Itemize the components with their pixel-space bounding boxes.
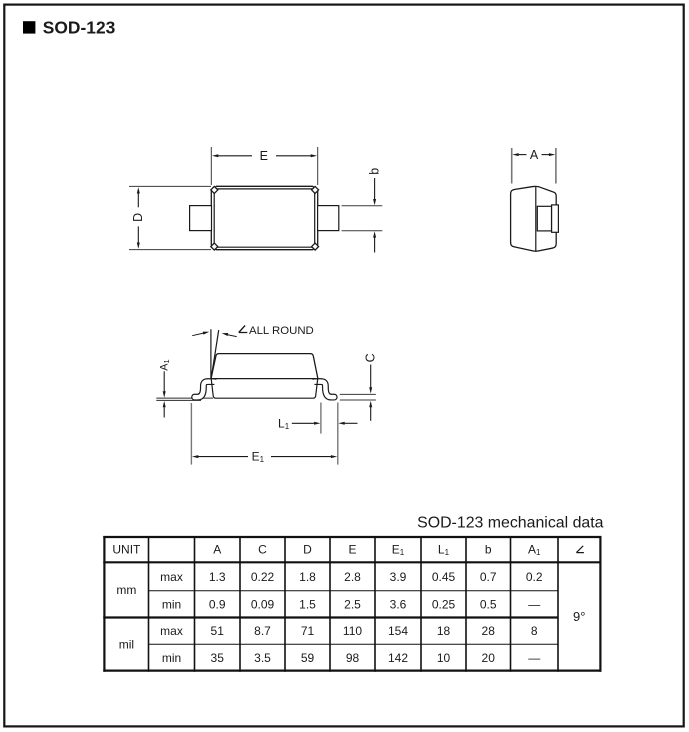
svg-text:3.5: 3.5 bbox=[254, 651, 271, 665]
svg-text:b: b bbox=[367, 168, 381, 175]
svg-text:2.5: 2.5 bbox=[344, 598, 361, 612]
svg-text:3.9: 3.9 bbox=[390, 570, 407, 584]
svg-text:b: b bbox=[485, 543, 492, 557]
svg-text:0.25: 0.25 bbox=[432, 598, 456, 612]
svg-text:3.6: 3.6 bbox=[390, 598, 407, 612]
svg-text:9°: 9° bbox=[573, 609, 585, 624]
svg-text:8.7: 8.7 bbox=[254, 624, 271, 638]
svg-text:A1: A1 bbox=[528, 543, 541, 558]
svg-text:UNIT: UNIT bbox=[112, 543, 141, 557]
svg-text:D: D bbox=[131, 213, 145, 222]
svg-text:mil: mil bbox=[119, 637, 134, 651]
svg-text:10: 10 bbox=[437, 651, 451, 665]
svg-text:E1: E1 bbox=[252, 450, 265, 465]
svg-text:mm: mm bbox=[116, 583, 136, 597]
svg-text:0.22: 0.22 bbox=[251, 570, 275, 584]
svg-text:C: C bbox=[258, 543, 267, 557]
svg-text:2.8: 2.8 bbox=[344, 570, 361, 584]
svg-text:SOD-123: SOD-123 bbox=[43, 18, 116, 38]
svg-text:L1: L1 bbox=[278, 416, 290, 431]
svg-text:A: A bbox=[530, 148, 539, 162]
svg-text:28: 28 bbox=[482, 624, 496, 638]
svg-text:1.3: 1.3 bbox=[209, 570, 226, 584]
svg-text:1.5: 1.5 bbox=[299, 598, 316, 612]
svg-text:20: 20 bbox=[482, 651, 496, 665]
svg-text:142: 142 bbox=[388, 651, 408, 665]
svg-text:min: min bbox=[162, 598, 181, 612]
svg-text:E: E bbox=[260, 149, 268, 163]
svg-text:—: — bbox=[528, 651, 540, 665]
svg-text:8: 8 bbox=[531, 624, 538, 638]
svg-text:—: — bbox=[528, 598, 540, 612]
svg-text:0.7: 0.7 bbox=[480, 570, 497, 584]
svg-text:35: 35 bbox=[211, 651, 225, 665]
svg-text:SOD-123 mechanical data: SOD-123 mechanical data bbox=[417, 515, 604, 532]
svg-text:ALL ROUND: ALL ROUND bbox=[249, 325, 314, 337]
svg-text:C: C bbox=[363, 353, 377, 362]
svg-text:0.09: 0.09 bbox=[251, 598, 275, 612]
svg-text:E: E bbox=[348, 543, 356, 557]
svg-text:71: 71 bbox=[301, 624, 315, 638]
svg-text:59: 59 bbox=[301, 651, 315, 665]
svg-text:L1: L1 bbox=[438, 543, 450, 558]
svg-text:51: 51 bbox=[211, 624, 225, 638]
svg-text:min: min bbox=[162, 651, 181, 665]
svg-text:1.8: 1.8 bbox=[299, 570, 316, 584]
svg-text:154: 154 bbox=[388, 624, 408, 638]
svg-text:0.45: 0.45 bbox=[432, 570, 456, 584]
svg-text:max: max bbox=[160, 570, 183, 584]
svg-text:A1: A1 bbox=[159, 359, 171, 370]
svg-text:A: A bbox=[213, 543, 221, 557]
svg-text:18: 18 bbox=[437, 624, 451, 638]
svg-text:98: 98 bbox=[346, 651, 360, 665]
svg-text:0.9: 0.9 bbox=[209, 598, 226, 612]
svg-text:0.5: 0.5 bbox=[480, 598, 497, 612]
svg-text:max: max bbox=[160, 624, 183, 638]
svg-text:0.2: 0.2 bbox=[526, 570, 543, 584]
svg-text:110: 110 bbox=[343, 624, 362, 638]
svg-text:E1: E1 bbox=[392, 543, 405, 558]
svg-text:D: D bbox=[303, 543, 312, 557]
